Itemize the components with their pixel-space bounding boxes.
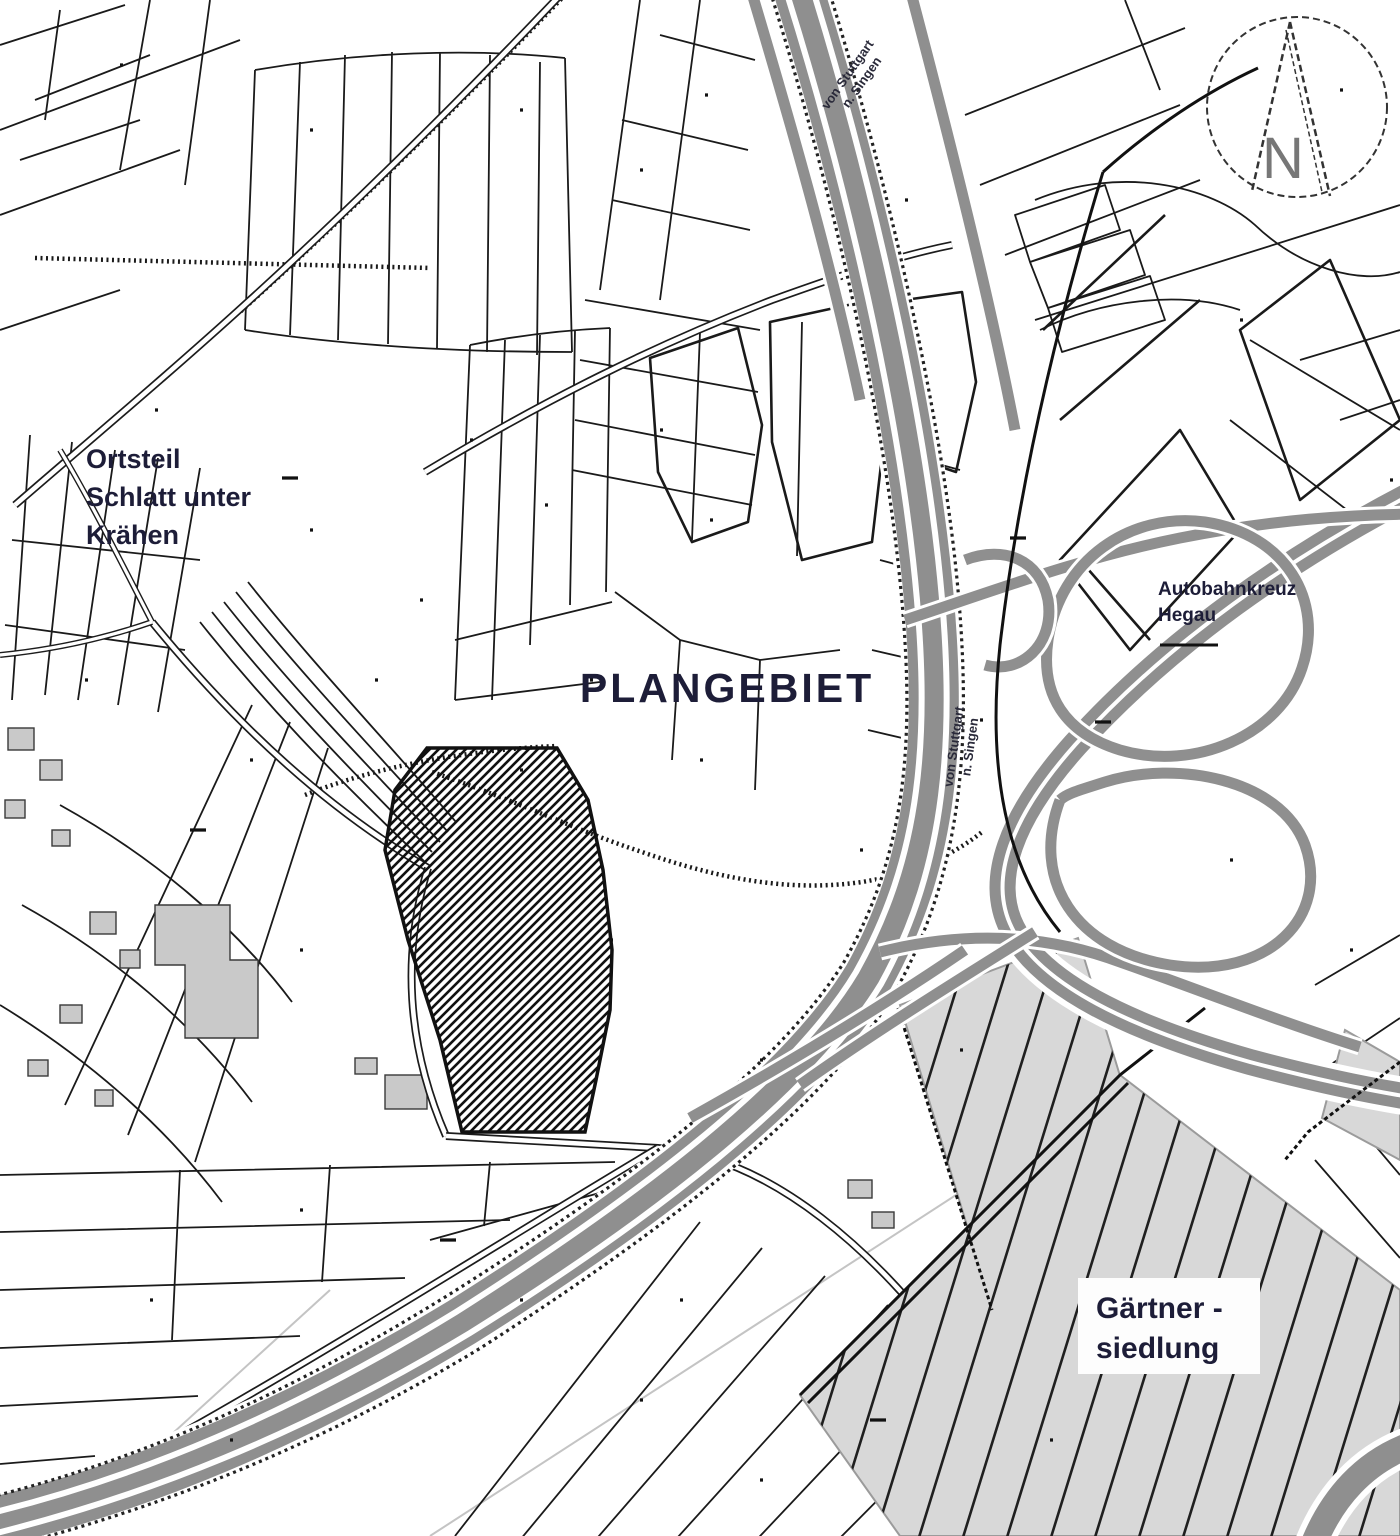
- autobahnkreuz-label-line2: Hegau: [1158, 605, 1216, 626]
- ortsteil-label-line1: Ortsteil: [86, 444, 181, 474]
- plangebiet-label: PLANGEBIET: [580, 665, 874, 711]
- site-plan-map: N PLANGEBIET Ortsteil Schlatt unter Kräh…: [0, 0, 1400, 1536]
- autobahnkreuz-label-line1: Autobahnkreuz: [1158, 579, 1296, 600]
- compass-letter: N: [1262, 126, 1304, 191]
- gaertnersiedlung-label-line2: siedlung: [1096, 1332, 1219, 1365]
- ortsteil-label-line3: Krähen: [86, 520, 179, 550]
- site-plan-page: N PLANGEBIET Ortsteil Schlatt unter Kräh…: [0, 0, 1400, 1536]
- ortsteil-label-line2: Schlatt unter: [86, 482, 252, 512]
- gaertnersiedlung-label-line1: Gärtner -: [1096, 1292, 1223, 1325]
